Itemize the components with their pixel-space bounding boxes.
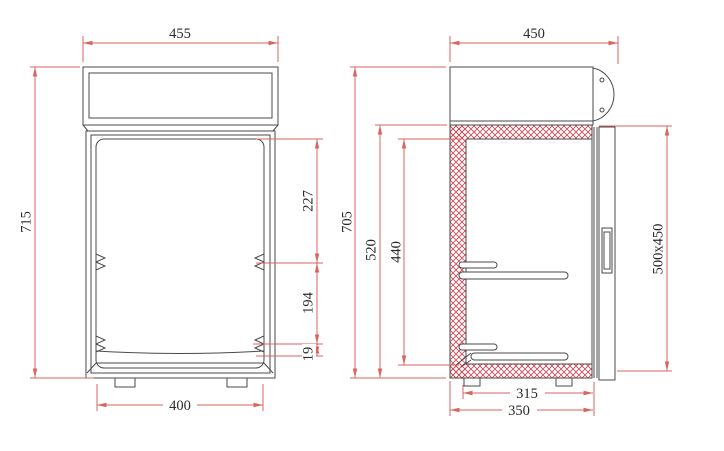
- front-door-glass: [96, 139, 264, 368]
- dim-705-extensions: [350, 67, 446, 378]
- side-door-gasket: [594, 127, 597, 378]
- front-bottom-shelf-top: [96, 351, 264, 354]
- front-signbox-outer: [83, 67, 278, 125]
- side-canopy: [450, 67, 593, 125]
- canopy-screw-top: [600, 78, 604, 82]
- label-base-width: 400: [169, 398, 191, 414]
- label-overall-height: 715: [18, 211, 34, 233]
- side-body-outer: [450, 125, 592, 378]
- front-signbox-inner: [89, 73, 272, 118]
- side-cavity-lines: [466, 139, 592, 364]
- front-view-dimensions: [30, 36, 323, 411]
- side-door: [599, 127, 615, 380]
- side-foot-left: [464, 378, 480, 386]
- label-side-overall-height: 705: [339, 211, 355, 233]
- shelf-1-front-rail: [459, 262, 497, 268]
- side-foot-right: [556, 378, 572, 386]
- side-view: [450, 67, 615, 386]
- side-canopy-bulge: [593, 68, 614, 121]
- front-shelf-clips: [96, 254, 264, 352]
- shelf-2: [471, 353, 568, 360]
- side-shelves: [456, 262, 568, 367]
- label-first-to-second-shelf: 194: [300, 291, 316, 314]
- label-cavity-height-inner: 440: [388, 241, 404, 263]
- label-top-width: 455: [169, 26, 191, 42]
- canopy-screw-bottom: [600, 108, 604, 112]
- technical-drawing-cooler: 455 715 227 194 19 400: [0, 0, 724, 451]
- front-foot-right: [227, 378, 247, 387]
- label-cavity-height-outer: 520: [363, 239, 379, 261]
- drawing-svg: 455 715 227 194 19 400: [0, 0, 724, 451]
- front-foot-left: [115, 378, 135, 387]
- side-insulation: [450, 125, 592, 378]
- shelf-2-front-rail: [459, 344, 497, 350]
- door-handle-inner: [604, 232, 610, 269]
- front-cabinet-mid: [91, 135, 270, 373]
- label-inner-base-depth: 315: [516, 386, 538, 402]
- front-view: [83, 67, 278, 387]
- front-cabinet-outer: [86, 131, 275, 378]
- label-door-top-to-first-shelf: 227: [300, 190, 316, 212]
- label-second-shelf-to-base: 19: [300, 347, 316, 362]
- shelf-1: [459, 272, 568, 279]
- label-door-dimensions: 500x450: [650, 224, 666, 275]
- front-signbox-joint: [83, 125, 278, 131]
- dim-715-extensions: [30, 67, 94, 378]
- label-base-depth: 350: [508, 403, 530, 419]
- label-top-depth: 450: [523, 26, 545, 42]
